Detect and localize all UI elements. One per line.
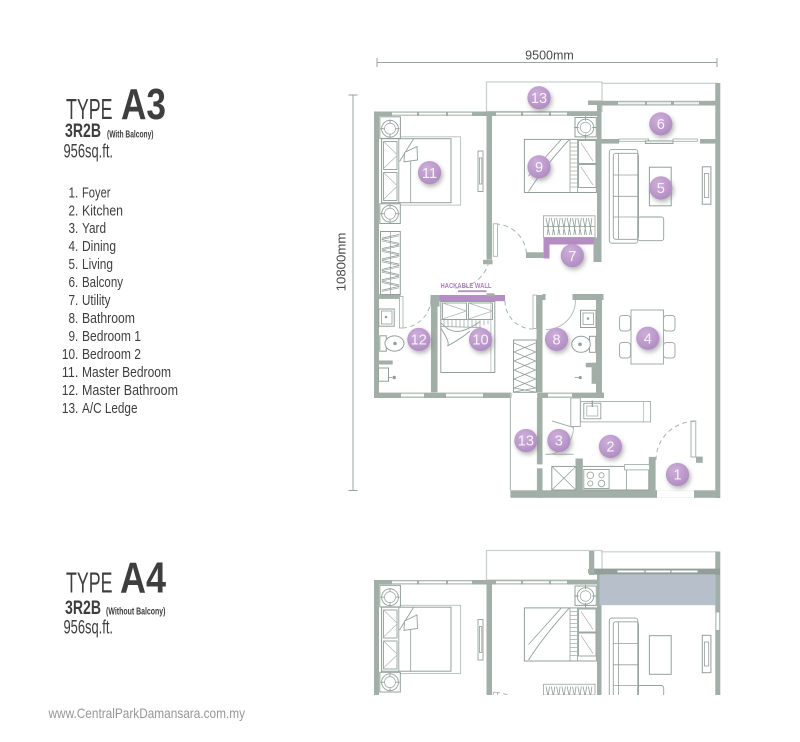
- svg-text:13: 13: [531, 91, 547, 107]
- svg-text:11: 11: [422, 166, 437, 182]
- svg-text:A3: A3: [121, 80, 166, 129]
- svg-text:TYPE: TYPE: [66, 568, 113, 600]
- svg-text:(Without Balcony): (Without Balcony): [106, 607, 166, 618]
- svg-text:6: 6: [657, 117, 665, 133]
- svg-text:A4: A4: [120, 554, 166, 603]
- svg-text:7: 7: [568, 249, 576, 265]
- svg-text:Dining: Dining: [82, 239, 116, 255]
- svg-text:1: 1: [673, 468, 681, 484]
- svg-text:7.: 7.: [69, 293, 79, 309]
- svg-text:11.: 11.: [62, 365, 78, 381]
- svg-text:10800mm: 10800mm: [334, 233, 349, 292]
- svg-text:Bedroom 2: Bedroom 2: [82, 347, 141, 363]
- svg-text:13.: 13.: [62, 401, 78, 417]
- svg-text:9: 9: [535, 160, 543, 176]
- svg-text:3R2B: 3R2B: [65, 121, 101, 142]
- svg-text:(With Balcony): (With Balcony): [107, 129, 154, 140]
- svg-text:3: 3: [555, 434, 563, 450]
- svg-text:9.: 9.: [69, 329, 79, 345]
- svg-text:13: 13: [518, 434, 534, 450]
- svg-text:Foyer: Foyer: [82, 185, 111, 201]
- svg-text:956sq.ft.: 956sq.ft.: [64, 618, 114, 639]
- svg-text:Kitchen: Kitchen: [82, 203, 123, 219]
- svg-text:Utility: Utility: [82, 293, 111, 309]
- svg-text:8: 8: [552, 333, 560, 349]
- svg-text:2: 2: [606, 440, 614, 456]
- svg-text:4.: 4.: [69, 239, 79, 255]
- svg-text:10.: 10.: [62, 347, 78, 363]
- svg-text:1.: 1.: [69, 185, 79, 201]
- svg-text:Bedroom 1: Bedroom 1: [82, 329, 141, 345]
- svg-text:Balcony: Balcony: [82, 275, 124, 291]
- svg-text:www.CentralParkDamansara.com.m: www.CentralParkDamansara.com.my: [48, 706, 245, 721]
- svg-text:4: 4: [644, 331, 652, 347]
- svg-text:5.: 5.: [69, 257, 79, 273]
- svg-text:Yard: Yard: [82, 221, 106, 237]
- svg-text:Bathroom: Bathroom: [82, 311, 135, 327]
- svg-text:12: 12: [411, 333, 427, 349]
- svg-text:Living: Living: [82, 257, 113, 273]
- svg-text:10: 10: [472, 333, 488, 349]
- svg-text:Master Bathroom: Master Bathroom: [82, 383, 178, 399]
- svg-text:A/C Ledge: A/C Ledge: [82, 401, 138, 417]
- svg-text:6.: 6.: [69, 275, 79, 291]
- svg-text:Master Bedroom: Master Bedroom: [82, 365, 171, 381]
- svg-text:2.: 2.: [69, 203, 79, 219]
- svg-text:12.: 12.: [62, 383, 78, 399]
- svg-text:5: 5: [657, 181, 665, 197]
- svg-text:8.: 8.: [69, 311, 79, 327]
- svg-text:9500mm: 9500mm: [525, 49, 574, 63]
- svg-text:3R2B: 3R2B: [65, 598, 101, 619]
- svg-text:HACKABLE WALL: HACKABLE WALL: [441, 281, 492, 290]
- svg-text:3.: 3.: [69, 221, 79, 237]
- svg-text:956sq.ft.: 956sq.ft.: [64, 142, 114, 163]
